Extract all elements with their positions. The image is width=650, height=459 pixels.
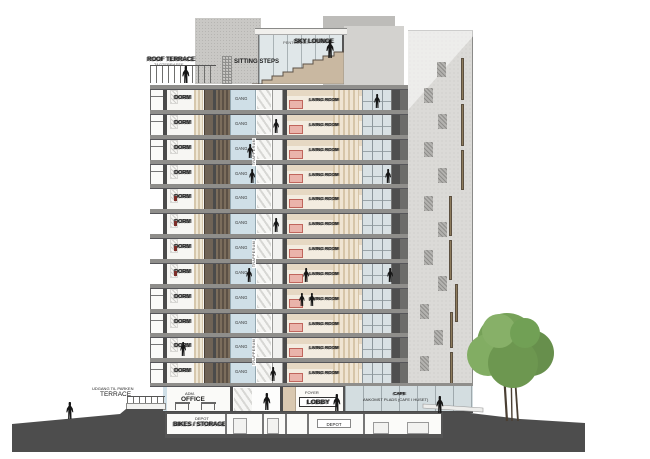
basement: DEPOT BIKES / STORAGE DEPOT: [165, 412, 443, 438]
basement-window: [373, 422, 389, 434]
red-door-mark: [174, 271, 177, 276]
depot-label: DEPOT: [195, 417, 209, 421]
bikes-storage-label: BIKES / STORAGE: [173, 422, 226, 428]
basement-window: [267, 418, 279, 434]
basement-window: [407, 422, 429, 434]
stairwell-label: TRAPPERUM: [252, 338, 256, 366]
red-door-mark: [174, 196, 177, 201]
stairwell-label: TRAPPERUM: [252, 240, 256, 268]
basement-wall: [363, 414, 365, 434]
red-door-mark: [174, 246, 177, 251]
architectural-section-drawing: PENTHOUSE SKY LOUNGE ROOF TERRACE TAGTER…: [0, 0, 650, 459]
basement-wall: [285, 414, 287, 434]
basement-window: [233, 418, 247, 434]
basement-wall: [225, 414, 227, 434]
tree: [455, 295, 575, 425]
red-door-mark: [174, 221, 177, 226]
basement-wall: [262, 414, 264, 434]
depot2-label: DEPOT: [317, 419, 351, 428]
basement-wall: [307, 414, 309, 434]
